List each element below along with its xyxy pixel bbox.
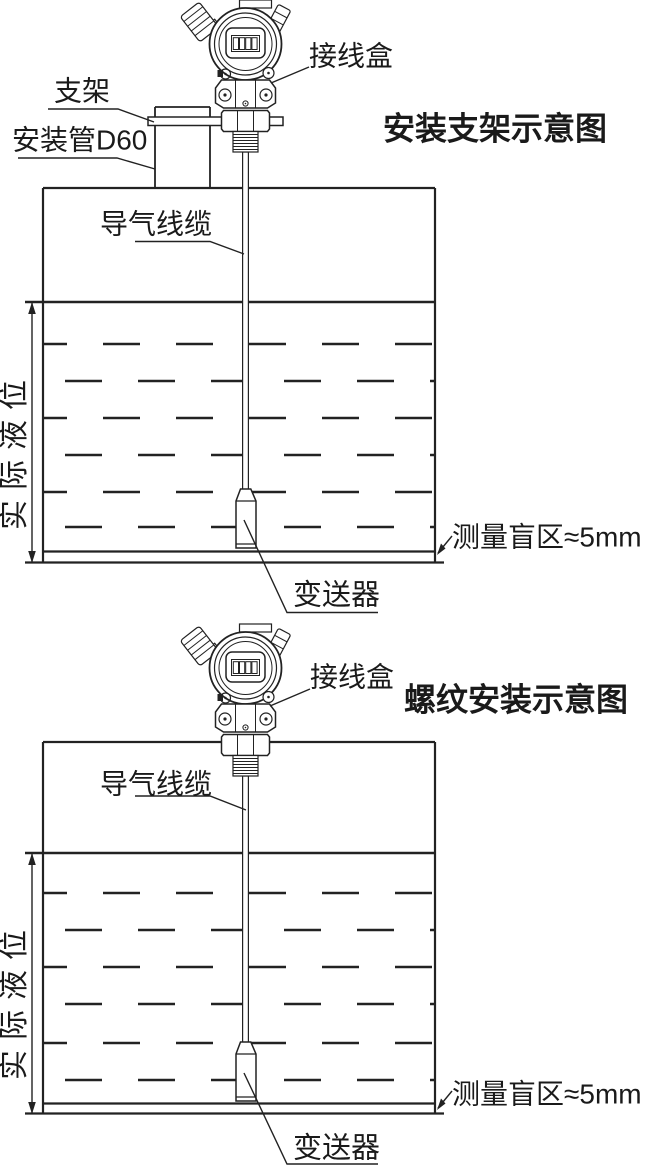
leader-blind-zone — [437, 1091, 452, 1110]
label-blind-zone: 测量盲区≈5mm — [452, 1078, 642, 1109]
label-transmitter: 变送器 — [293, 1132, 380, 1165]
leader-blind-zone — [437, 536, 452, 555]
tank — [25, 742, 444, 1114]
label-mounting-pipe: 安装管D60 — [12, 124, 147, 155]
installation-diagrams-canvas: 安装支架示意图 接线盒 支架 安装管D60 导气线缆 实际液位 测量盲区≈5mm… — [0, 0, 650, 1171]
label-junction-box: 接线盒 — [310, 661, 394, 692]
bracket-installation-diagram: 安装支架示意图 接线盒 支架 安装管D60 导气线缆 实际液位 测量盲区≈5mm… — [0, 0, 642, 613]
leader-mounting-pipe — [18, 158, 155, 169]
label-actual-level: 实际液位 — [0, 920, 31, 1080]
air-guide-cable — [243, 152, 249, 492]
installation-diagrams-page: 安装支架示意图 接线盒 支架 安装管D60 导气线缆 实际液位 测量盲区≈5mm… — [0, 0, 650, 1171]
leader-junction-box — [271, 67, 309, 83]
label-actual-level: 实际液位 — [0, 370, 31, 530]
label-transmitter: 变送器 — [293, 579, 380, 612]
diagram-title: 安装支架示意图 — [383, 110, 607, 146]
label-air-cable: 导气线缆 — [100, 208, 212, 239]
leader-junction-box — [270, 689, 310, 706]
label-blind-zone: 测量盲区≈5mm — [452, 521, 642, 552]
diagram-title: 螺纹安装示意图 — [404, 681, 628, 717]
transmitter-head — [180, 624, 291, 776]
label-air-cable: 导气线缆 — [100, 768, 212, 799]
leader-air-cable — [135, 242, 244, 255]
tank — [25, 188, 444, 563]
threaded-installation-diagram: 螺纹安装示意图 接线盒 导气线缆 实际液位 测量盲区≈5mm 变送器 — [0, 624, 642, 1165]
air-guide-cable — [243, 776, 249, 1044]
label-bracket: 支架 — [54, 75, 110, 106]
transmitter-head — [180, 0, 291, 152]
label-junction-box: 接线盒 — [309, 40, 393, 71]
leader-bracket — [48, 109, 154, 122]
